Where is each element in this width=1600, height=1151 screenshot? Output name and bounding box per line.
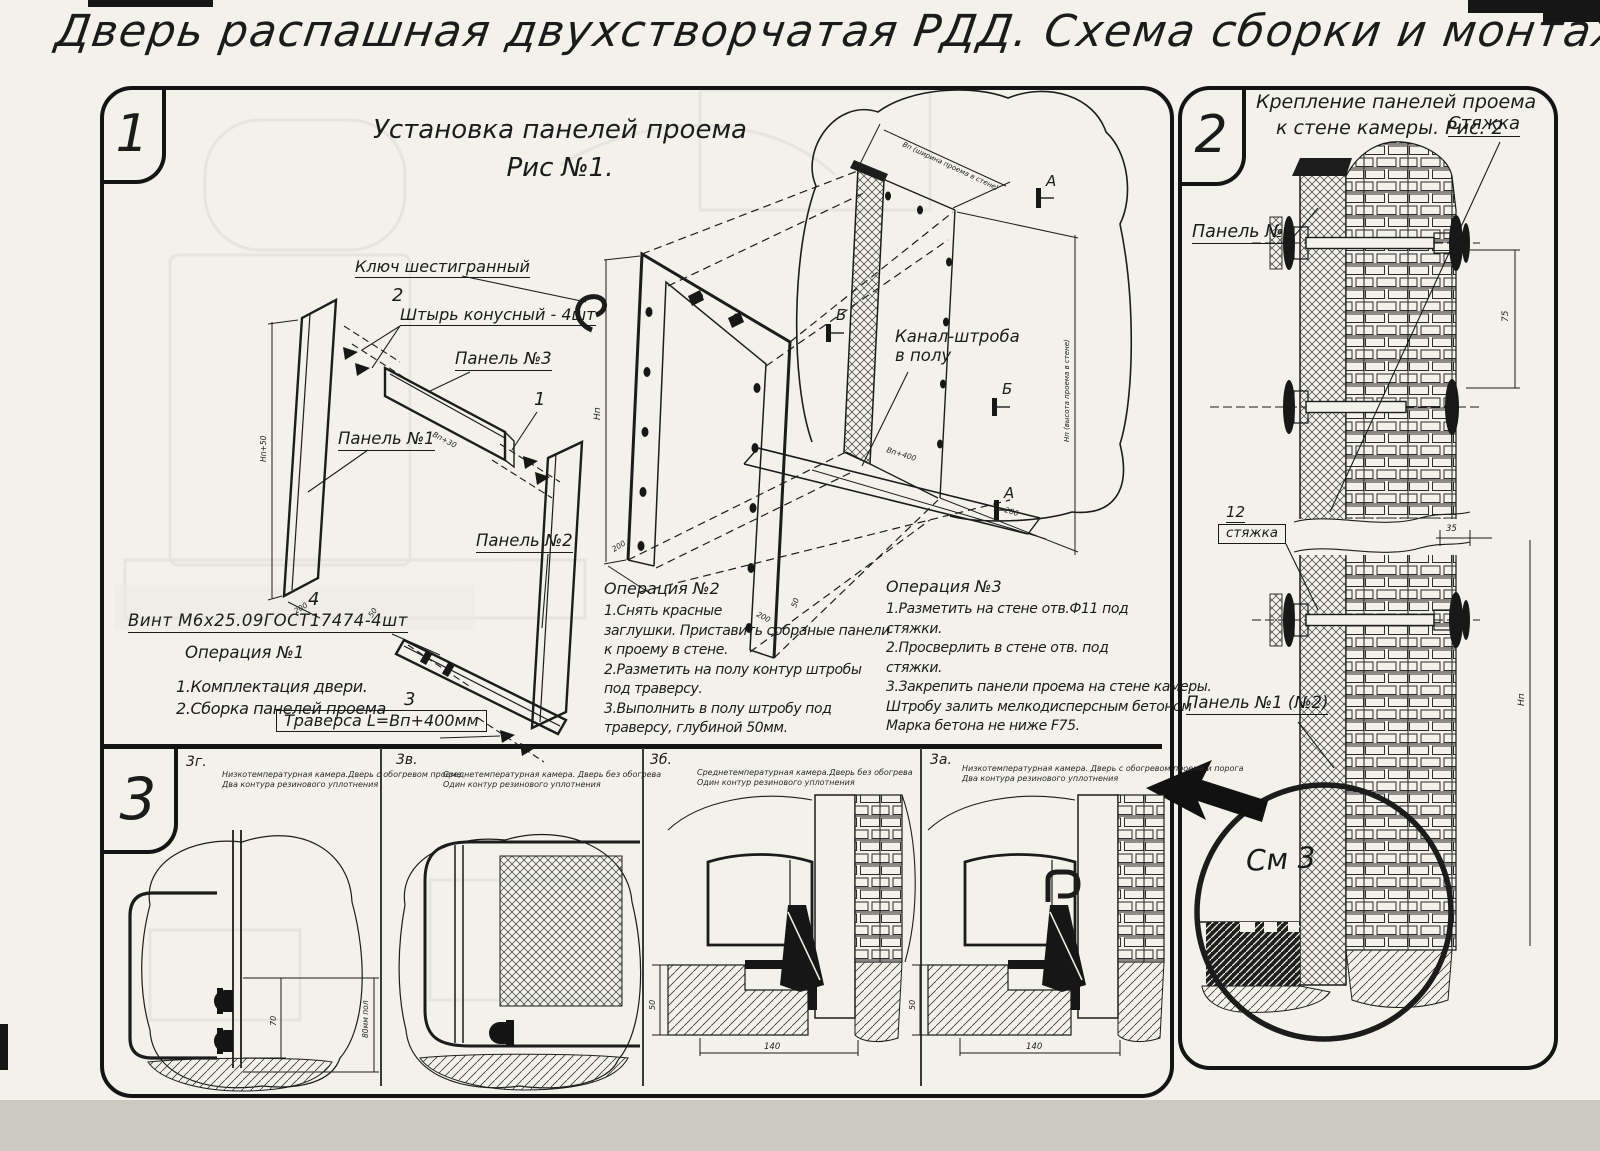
rubber-seal-icon <box>489 1020 514 1046</box>
caption-line: Один контур резинового уплотнения <box>443 780 661 790</box>
op2-line: под траверсу. <box>604 680 890 700</box>
view-3v-caption: Среднетемпературная камера. Дверь без об… <box>443 770 661 790</box>
caption-line: Два контура резинового уплотнения <box>222 780 461 790</box>
dim-label: Нп (высота проема в стене) <box>1063 339 1071 442</box>
dim-label: Вп (ширина проема в стене) <box>901 141 1000 193</box>
dim-label: 140 <box>764 1042 780 1052</box>
op2-line: 3.Выполнить в полу штробу под <box>604 700 890 720</box>
op3-line: 3.Закрепить панели проема на стене камер… <box>886 678 1211 698</box>
op3-line: Марка бетона не ниже F75. <box>886 717 1211 737</box>
marker-label: Б <box>1002 380 1012 398</box>
section1-number: 1 <box>115 104 148 164</box>
section2-badge: 2 <box>1180 88 1246 186</box>
caption-line: Среднетемпературная камера. Дверь без об… <box>443 770 661 780</box>
view-3a-caption: Низкотемпературная камера. Дверь с обогр… <box>962 764 1244 784</box>
op2-title: Операция №2 <box>604 580 720 598</box>
pos-2-label: 2 <box>392 286 403 307</box>
dim-label: 70 <box>269 1016 278 1026</box>
hex-key-label: Ключ шестигранный <box>355 258 530 278</box>
op2-line: 2.Разметить на полу контур штробы <box>604 661 890 681</box>
panel12-label: Панель №1 (№2) <box>1186 694 1328 715</box>
dim-label: 35 <box>1446 524 1457 534</box>
dim-label: 200 <box>610 538 627 553</box>
dim-label: 75 <box>1501 310 1511 322</box>
section3-badge: 3 <box>102 748 178 854</box>
channel-label-line2: в полу <box>895 347 1020 366</box>
traverse-label: Траверса L=Bп+400мм <box>276 710 487 732</box>
dim-label: 50 <box>908 1000 917 1010</box>
view-3v-marker: 3в. <box>396 752 418 768</box>
view-3b-caption: Среднетемпературная камера.Дверь без обо… <box>697 768 913 788</box>
op3-line: Штробу залить мелкодисперсным бетоном <box>886 698 1211 718</box>
panel3-label: Панель №3 <box>455 350 552 371</box>
fig2-title-line1: Крепление панелей проема <box>1256 92 1536 114</box>
tie-label: Стяжка <box>1448 114 1520 137</box>
see-detail-label: См 3 <box>1245 841 1316 878</box>
caption-line: Низкотемпературная камера. Дверь с обогр… <box>962 764 1244 774</box>
fig1-subtitle: Рис №1. <box>340 154 780 184</box>
drawing-sheet: Дверь распашная двухстворчатая РДД. Схем… <box>0 0 1600 1151</box>
channel-label: Канал-штроба в полу <box>895 328 1020 366</box>
panel3-section-label: Панель №3 <box>1192 222 1295 244</box>
op2-text: 1.Снять красные заглушки. Приставить соб… <box>604 602 890 739</box>
view-3g-marker: 3г. <box>186 754 207 770</box>
op2-line: 1.Снять красные <box>604 602 890 622</box>
detail-3v <box>399 835 640 1090</box>
dim-label: 140 <box>1026 1042 1042 1052</box>
op2-line: траверсу, глубиной 50мм. <box>604 719 890 739</box>
marker-label: А <box>1003 484 1014 502</box>
wall-opening-view: Вп (ширина проема в стене) Нп (высота пр… <box>744 90 1131 555</box>
caption-line: Среднетемпературная камера.Дверь без обо… <box>697 768 913 778</box>
channel-label-line1: Канал-штроба <box>895 328 1020 347</box>
view-3a-marker: 3а. <box>930 752 952 768</box>
dim-label: 80мм пол <box>361 1000 370 1038</box>
caption-line: Два контура резинового уплотнения <box>962 774 1244 784</box>
pos-4-label: 4 <box>308 590 319 611</box>
panel1-label: Панель №1 <box>338 430 435 451</box>
screw-label: Винт М6х25.09ГОСТ17474-4шт <box>128 612 408 633</box>
op1-title: Операция №1 <box>185 644 304 663</box>
marker-label: А <box>1045 172 1056 190</box>
op3-text: 1.Разметить на стене отв.Ф11 под стяжки.… <box>886 600 1211 737</box>
pos-3-label: 3 <box>404 690 415 711</box>
caption-line: Низкотемпературная камера.Дверь с обогре… <box>222 770 461 780</box>
dim-label: Нп <box>593 407 603 420</box>
op2-line: заглушки. Приставить собраные панели <box>604 622 890 642</box>
op3-title: Операция №3 <box>886 578 1002 596</box>
caption-line: Один контур резинового уплотнения <box>697 778 913 788</box>
dim-label: Нп <box>1517 693 1527 706</box>
op3-line: 2.Просверлить в стене отв. под <box>886 639 1211 659</box>
view-3b-marker: 3б. <box>650 752 672 768</box>
detail-3g: 70 80мм пол <box>130 830 379 1091</box>
op3-line: стяжки. <box>886 659 1211 679</box>
dim-label: Нп+50 <box>259 435 268 462</box>
pos-12-label: 12 <box>1226 504 1245 523</box>
marker-label: Б <box>836 306 846 324</box>
dim-label: 50 <box>648 1000 657 1010</box>
pin-label: Штырь конусный - 4шт <box>400 306 596 326</box>
detail-3b: 50 140 <box>648 795 915 1056</box>
tie-boxed-label: стяжка <box>1218 524 1286 544</box>
op2-line: к проему в стене. <box>604 641 890 661</box>
panel2-label: Панель №2 <box>476 532 573 553</box>
view-3g-caption: Низкотемпературная камера.Дверь с обогре… <box>222 770 461 790</box>
pos-1-label: 1 <box>534 390 545 411</box>
op3-line: 1.Разметить на стене отв.Ф11 под <box>886 600 1211 620</box>
drawing-layer: Нп+50 200 50 Вп+30 <box>0 0 1600 1151</box>
section2-number: 2 <box>1194 105 1227 165</box>
section1-badge: 1 <box>102 88 166 184</box>
fig1-title: Установка панелей проема <box>340 116 780 146</box>
dim-label: Вп+400 <box>885 445 917 463</box>
op1-line: 1.Комплектация двери. <box>176 676 386 698</box>
detail-3a: 50 140 <box>908 795 1164 1056</box>
section3-number: 3 <box>120 765 157 833</box>
op3-line: стяжки. <box>886 620 1211 640</box>
